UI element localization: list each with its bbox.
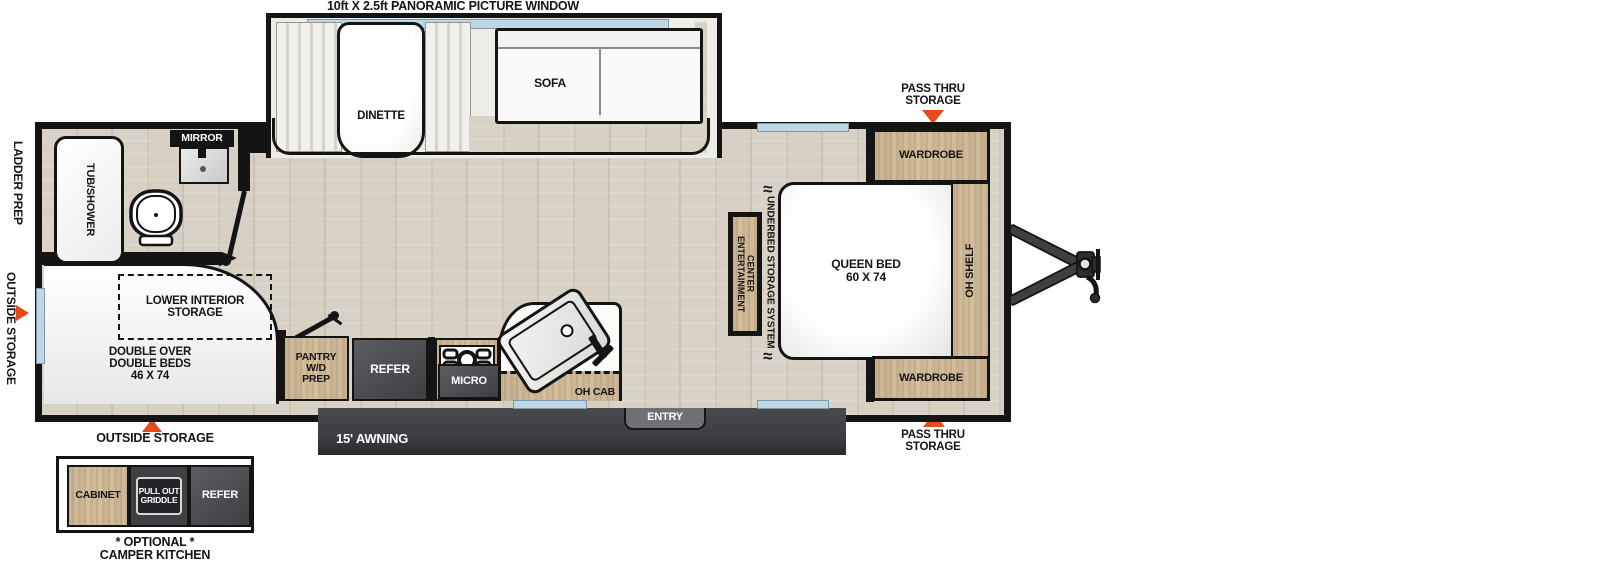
overhead-shelf: OH SHELF	[951, 182, 990, 360]
refer-cooktop-divider	[428, 337, 435, 401]
queen-bed: QUEEN BED 60 X 74	[778, 182, 954, 360]
rear-side-window	[36, 288, 45, 364]
griddle-icon: PULL OUT GRIDDLE	[136, 477, 182, 515]
sofa-center-seam	[599, 49, 601, 115]
pass-thru-storage-bottom-label: PASS THRU STORAGE	[873, 429, 993, 453]
underbed-brace-top: ≈	[763, 180, 772, 198]
wardrobe-top-label: WARDROBE	[899, 150, 963, 162]
outside-storage-bottom-label: OUTSIDE STORAGE	[65, 432, 245, 445]
refrigerator: REFER	[352, 338, 428, 401]
mirror-banner: MIRROR	[170, 130, 234, 147]
camper-kitchen-box: CABINET PULL OUT GRIDDLE REFER	[56, 456, 254, 533]
slide-floor-boundary	[272, 118, 710, 155]
sofa-label: SOFA	[506, 55, 594, 111]
outside-storage-side-arrow	[16, 305, 29, 321]
wardrobe-bottom-label: WARDROBE	[899, 373, 963, 385]
refrigerator-label: REFER	[370, 363, 410, 376]
camper-kitchen-griddle-label: PULL OUT GRIDDLE	[139, 487, 180, 505]
queen-bed-label: QUEEN BED 60 X 74	[831, 258, 901, 283]
bathroom-sink-drain	[200, 166, 206, 172]
pantry-label: PANTRY W/D PREP	[296, 352, 337, 385]
bathroom-faucet	[198, 148, 206, 158]
camper-kitchen-cabinet: CABINET	[67, 465, 129, 527]
underbed-storage-label: UNDERBED STORAGE SYSTEM	[764, 196, 775, 349]
sofa: SOFA	[495, 28, 703, 124]
camper-kitchen-cabinet-label: CABINET	[75, 490, 120, 501]
wardrobe-top: WARDROBE	[872, 129, 990, 183]
microwave-label: MICRO	[451, 376, 487, 388]
tub-shower: TUB/SHOWER	[54, 136, 124, 264]
pass-thru-storage-top-label: PASS THRU STORAGE	[873, 83, 993, 107]
awning: 15' AWNING	[318, 408, 846, 455]
entry-label: ENTRY	[647, 412, 683, 424]
door-side-window-1	[513, 400, 587, 409]
awning-label: 15' AWNING	[318, 418, 408, 446]
camper-kitchen-refer-label: REFER	[202, 490, 238, 502]
overhead-shelf-label: OH SHELF	[965, 244, 977, 298]
entry-door: ENTRY	[624, 408, 706, 430]
panoramic-window-title: 10ft X 2.5ft PANORAMIC PICTURE WINDOW	[253, 0, 653, 13]
mirror-label: MIRROR	[181, 133, 222, 144]
wall-corner-block	[247, 129, 268, 153]
bathroom-sink	[179, 147, 229, 184]
toilet-icon	[128, 188, 184, 248]
floorplan-canvas: 10ft X 2.5ft PANORAMIC PICTURE WINDOW DI…	[0, 0, 1600, 566]
door-side-window-2	[757, 400, 829, 409]
microwave: MICRO	[438, 364, 500, 399]
lower-interior-storage-label: LOWER INTERIOR STORAGE	[120, 276, 270, 338]
pantry: PANTRY W/D PREP	[283, 336, 349, 401]
entertainment-center-label: ENTERTAINMENT CENTER	[736, 236, 755, 312]
optional-camper-kitchen-caption: * OPTIONAL * CAMPER KITCHEN	[55, 536, 255, 562]
lower-interior-storage: LOWER INTERIOR STORAGE	[118, 274, 272, 340]
underbed-brace-bottom: ≈	[763, 347, 772, 365]
outside-storage-side-label: OUTSIDE STORAGE	[0, 243, 17, 413]
wardrobe-bottom: WARDROBE	[872, 356, 990, 401]
camper-kitchen-refer: REFER	[189, 465, 251, 527]
overhead-cabinet-label: OH CAB	[575, 387, 615, 398]
bedroom-top-window	[757, 123, 849, 132]
double-beds-label: DOUBLE OVER DOUBLE BEDS 46 X 74	[70, 346, 230, 382]
tub-shower-label: TUB/SHOWER	[83, 163, 95, 236]
camper-kitchen-griddle: PULL OUT GRIDDLE	[129, 465, 189, 527]
ladder-prep-label: LADDER PREP	[6, 127, 24, 239]
